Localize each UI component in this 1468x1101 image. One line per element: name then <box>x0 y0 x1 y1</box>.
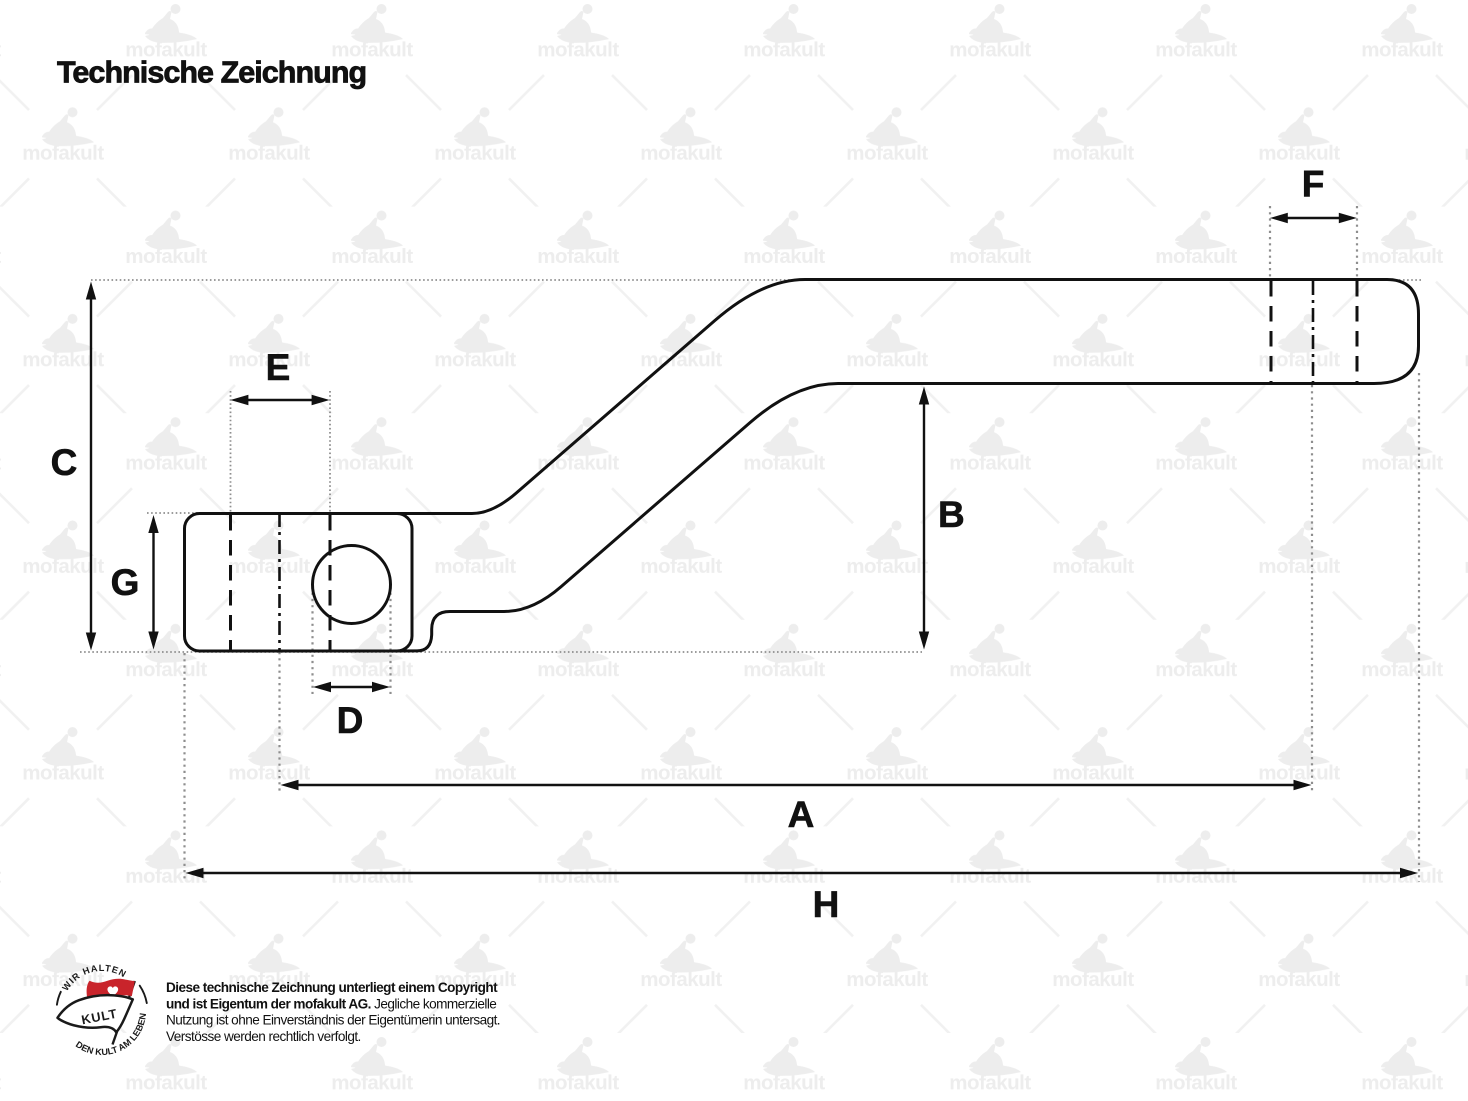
svg-text:G: G <box>111 562 140 603</box>
svg-text:und ist Eigentum der mofakult: und ist Eigentum der mofakult AG. Jeglic… <box>166 996 496 1011</box>
svg-text:F: F <box>1302 164 1325 205</box>
svg-text:D: D <box>337 700 364 741</box>
svg-text:Diese technische Zeichnung unt: Diese technische Zeichnung unterliegt ei… <box>166 980 498 995</box>
svg-text:B: B <box>938 494 965 535</box>
svg-text:H: H <box>813 884 840 925</box>
svg-text:A: A <box>788 794 815 835</box>
svg-text:Technische Zeichnung: Technische Zeichnung <box>57 56 366 90</box>
svg-text:E: E <box>266 347 291 388</box>
svg-text:Nutzung ist ohne Einverständni: Nutzung ist ohne Einverständnis der Eige… <box>166 1013 500 1028</box>
svg-text:Verstösse werden rechtlich ver: Verstösse werden rechtlich verfolgt. <box>166 1029 361 1044</box>
svg-text:C: C <box>51 442 78 483</box>
